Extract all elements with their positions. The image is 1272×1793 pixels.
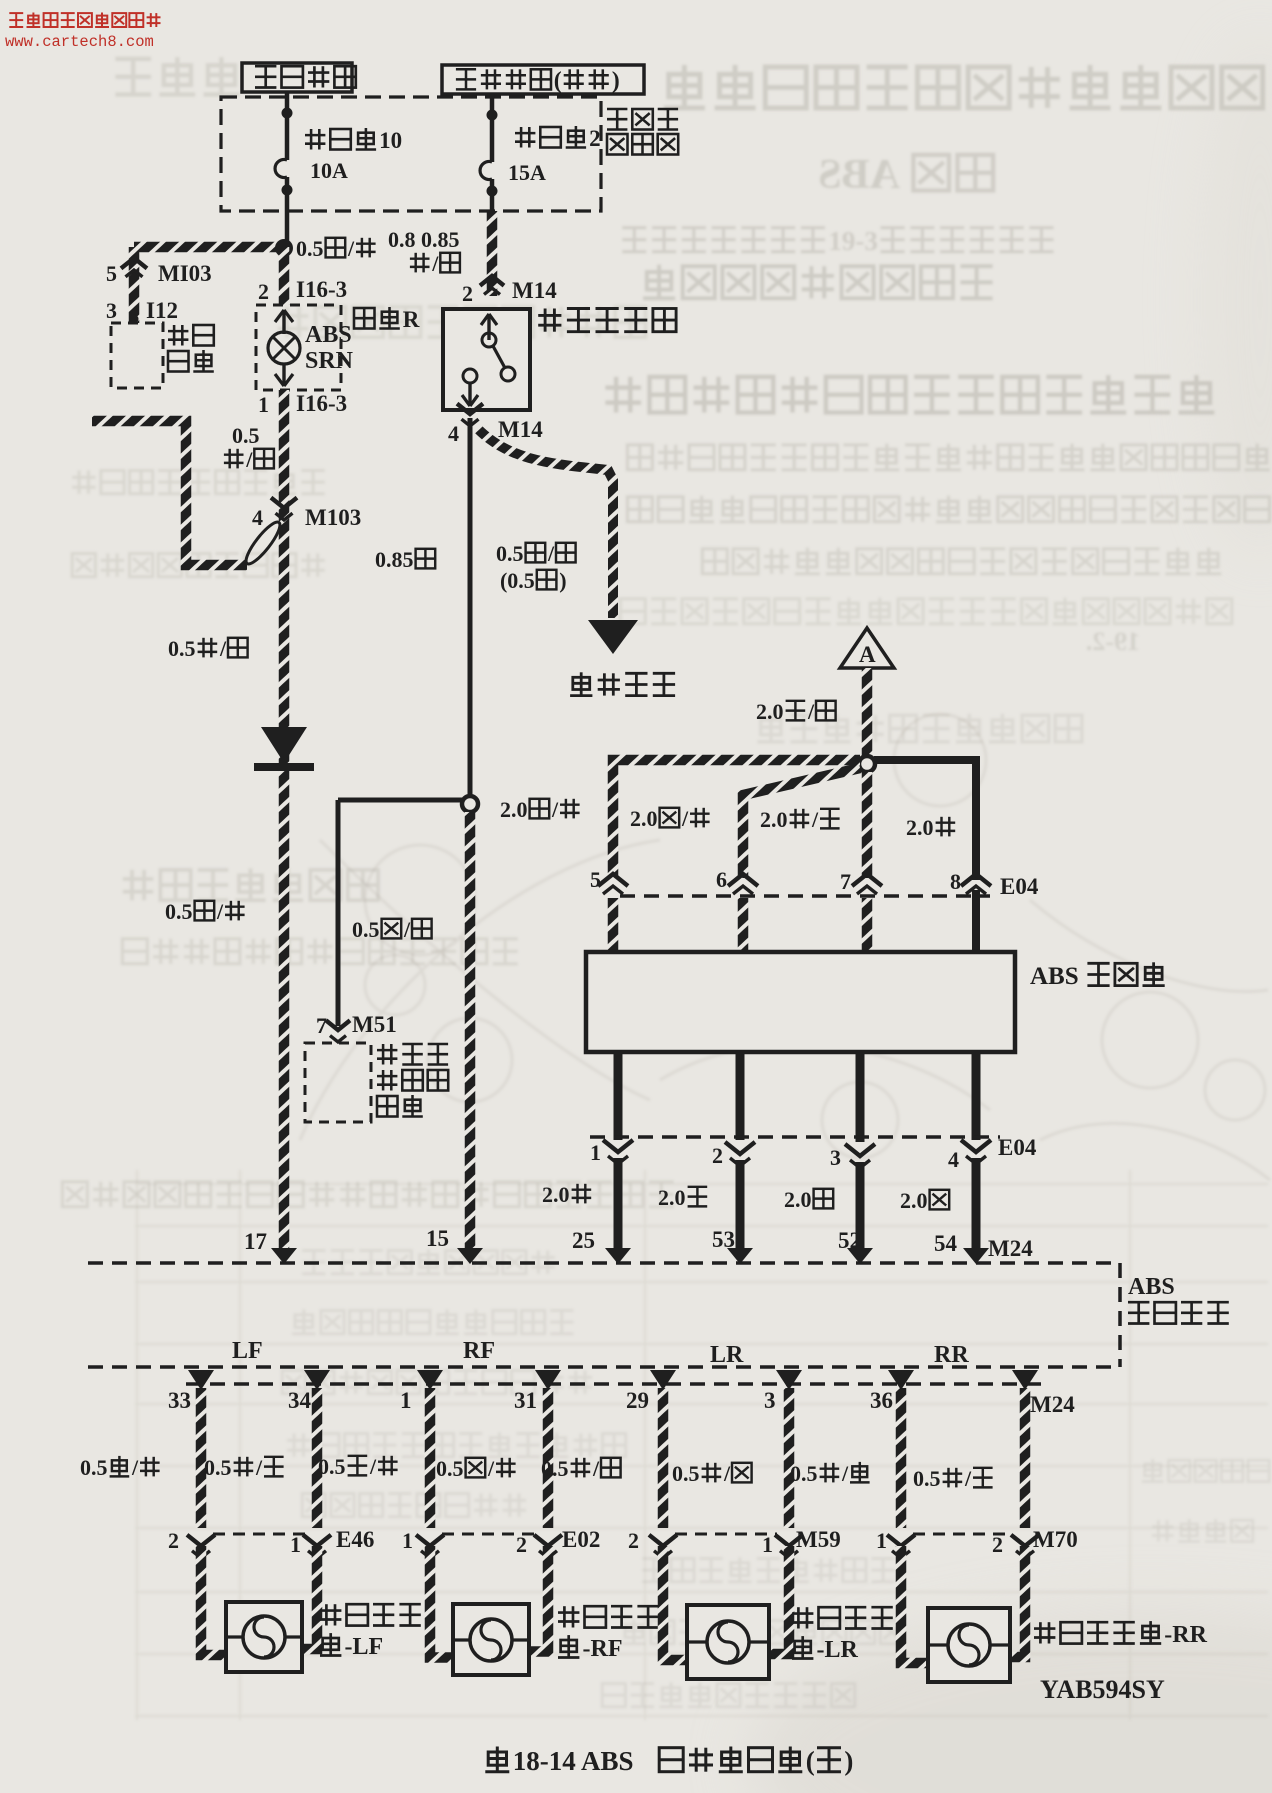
svg-text:3: 3	[764, 1388, 776, 1413]
svg-text:RF: RF	[463, 1338, 495, 1364]
svg-text:/: /	[841, 1461, 849, 1486]
svg-text:3: 3	[106, 298, 117, 323]
svg-text:ABS: ABS	[1030, 963, 1079, 990]
svg-text:-LF: -LF	[345, 1634, 384, 1660]
svg-text:E04: E04	[998, 1135, 1037, 1160]
svg-text:2.0: 2.0	[900, 1188, 928, 1213]
svg-text:M24: M24	[988, 1236, 1033, 1261]
svg-text:0.5: 0.5	[318, 1454, 346, 1479]
svg-text:29: 29	[626, 1388, 649, 1413]
svg-text:0.5: 0.5	[672, 1461, 700, 1486]
svg-text:M14: M14	[512, 278, 557, 303]
svg-text:M70: M70	[1033, 1527, 1078, 1552]
svg-text:/: /	[369, 1454, 377, 1479]
svg-text:2: 2	[462, 281, 473, 306]
svg-text:0.5: 0.5	[790, 1461, 818, 1486]
svg-text:33: 33	[168, 1388, 191, 1413]
svg-text:2: 2	[516, 1532, 527, 1557]
svg-text:I12: I12	[146, 298, 178, 323]
svg-text:): )	[559, 568, 566, 593]
svg-text:2.0: 2.0	[760, 807, 788, 832]
svg-text:E02: E02	[562, 1527, 600, 1552]
svg-text:/: /	[431, 251, 439, 276]
svg-text:I16-3: I16-3	[296, 391, 347, 416]
svg-text:/: /	[964, 1466, 972, 1491]
svg-text:15: 15	[426, 1226, 449, 1251]
svg-text:0.5: 0.5	[913, 1466, 941, 1491]
svg-text:1: 1	[590, 1140, 601, 1165]
svg-text:/: /	[403, 917, 411, 942]
svg-text:54: 54	[934, 1231, 958, 1256]
svg-text:0.5: 0.5	[165, 899, 193, 924]
svg-text:19-2.: 19-2.	[1086, 627, 1140, 656]
svg-text:MI03: MI03	[158, 261, 212, 286]
svg-text:I16-3: I16-3	[296, 277, 347, 302]
svg-text:2.0: 2.0	[658, 1185, 686, 1210]
svg-text:17: 17	[244, 1229, 267, 1254]
svg-text:LR: LR	[710, 1342, 744, 1368]
svg-text:5: 5	[590, 867, 601, 892]
svg-text:/: /	[681, 806, 689, 831]
svg-text:ABS: ABS	[818, 152, 900, 198]
svg-text:25: 25	[572, 1228, 595, 1253]
svg-text:/: /	[245, 447, 253, 472]
svg-text:/: /	[723, 1461, 731, 1486]
svg-text:2.0: 2.0	[784, 1187, 812, 1212]
svg-text:2: 2	[168, 1528, 179, 1553]
svg-text:5: 5	[106, 261, 117, 286]
svg-text:M59: M59	[796, 1527, 841, 1552]
svg-text:3: 3	[830, 1145, 841, 1170]
svg-text:18-14 ABS: 18-14 ABS	[513, 1746, 634, 1776]
svg-text:(: (	[500, 568, 507, 593]
svg-text:YAB594SY: YAB594SY	[1040, 1675, 1165, 1704]
svg-text:E04: E04	[1000, 874, 1039, 899]
svg-text:2: 2	[712, 1143, 723, 1168]
svg-text:2: 2	[628, 1528, 639, 1553]
svg-text:1: 1	[258, 392, 269, 417]
svg-text:A: A	[859, 642, 876, 667]
svg-text:4: 4	[252, 505, 263, 530]
svg-text:36: 36	[870, 1388, 893, 1413]
svg-text:10: 10	[379, 128, 402, 153]
svg-text:7: 7	[316, 1013, 327, 1038]
svg-text:0.5: 0.5	[204, 1455, 232, 1480]
svg-text:/: /	[487, 1456, 495, 1481]
svg-text:2: 2	[258, 279, 269, 304]
svg-text:0.5: 0.5	[232, 423, 260, 448]
svg-text:/: /	[547, 541, 555, 566]
svg-text:-RF: -RF	[583, 1636, 623, 1662]
svg-text:ABS: ABS	[1128, 1274, 1175, 1300]
svg-text:0.5: 0.5	[496, 541, 524, 566]
svg-text:10A: 10A	[310, 158, 348, 183]
svg-text:4: 4	[948, 1147, 959, 1172]
svg-text:1: 1	[402, 1528, 413, 1553]
svg-text:-RR: -RR	[1164, 1622, 1207, 1648]
svg-text:0.85: 0.85	[375, 547, 414, 572]
svg-text:6: 6	[716, 867, 727, 892]
svg-text:/: /	[131, 1455, 139, 1480]
svg-text:0.5: 0.5	[168, 636, 196, 661]
svg-text:E46: E46	[336, 1527, 374, 1552]
svg-text:RR: RR	[934, 1342, 969, 1368]
svg-text:1: 1	[762, 1532, 773, 1557]
svg-text:2.0: 2.0	[630, 806, 658, 831]
svg-text:LF: LF	[232, 1338, 263, 1364]
svg-text:/: /	[347, 236, 355, 261]
svg-text:0.8 0.85: 0.8 0.85	[388, 227, 460, 252]
svg-text:www.cartech8.com: www.cartech8.com	[5, 33, 154, 51]
svg-text:1: 1	[876, 1528, 887, 1553]
svg-text:19-3: 19-3	[828, 226, 878, 256]
svg-text:0.5: 0.5	[352, 917, 380, 942]
svg-text:/: /	[807, 699, 815, 724]
svg-text:2.0: 2.0	[756, 699, 784, 724]
svg-text:/: /	[216, 899, 224, 924]
svg-text:/: /	[551, 797, 559, 822]
svg-text:/: /	[255, 1455, 263, 1480]
svg-text:0.5: 0.5	[507, 568, 535, 593]
svg-text:2.0: 2.0	[542, 1182, 570, 1207]
svg-text:): )	[844, 1746, 853, 1776]
svg-text:34: 34	[288, 1388, 312, 1413]
svg-text:8: 8	[950, 869, 961, 894]
svg-text:SRN: SRN	[305, 348, 354, 374]
svg-text:2: 2	[992, 1532, 1003, 1557]
svg-text:M103: M103	[305, 505, 361, 530]
svg-text:2: 2	[589, 126, 601, 151]
svg-text:31: 31	[514, 1388, 537, 1413]
svg-text:R: R	[403, 307, 420, 332]
svg-text:0.5: 0.5	[541, 1456, 569, 1481]
svg-text:7: 7	[840, 869, 851, 894]
svg-text:M14: M14	[498, 417, 543, 442]
svg-text:(: (	[554, 68, 562, 94]
svg-text:15A: 15A	[508, 160, 546, 185]
svg-text:0.5: 0.5	[436, 1456, 464, 1481]
svg-text:0.5: 0.5	[296, 236, 324, 261]
svg-text:0.5: 0.5	[80, 1455, 108, 1480]
svg-text:/: /	[811, 807, 819, 832]
svg-text:): )	[612, 68, 620, 94]
svg-text:M24: M24	[1030, 1392, 1075, 1417]
svg-text:M51: M51	[352, 1012, 397, 1037]
svg-text:2.0: 2.0	[500, 797, 528, 822]
svg-text:1: 1	[400, 1388, 412, 1413]
svg-text:2.0: 2.0	[906, 815, 934, 840]
svg-text:-LR: -LR	[817, 1637, 859, 1663]
svg-text:ABS: ABS	[305, 322, 352, 348]
svg-text:/: /	[219, 636, 227, 661]
svg-text:1: 1	[290, 1532, 301, 1557]
svg-text:/: /	[592, 1456, 600, 1481]
svg-text:(: (	[806, 1746, 815, 1776]
svg-text:4: 4	[448, 421, 459, 446]
